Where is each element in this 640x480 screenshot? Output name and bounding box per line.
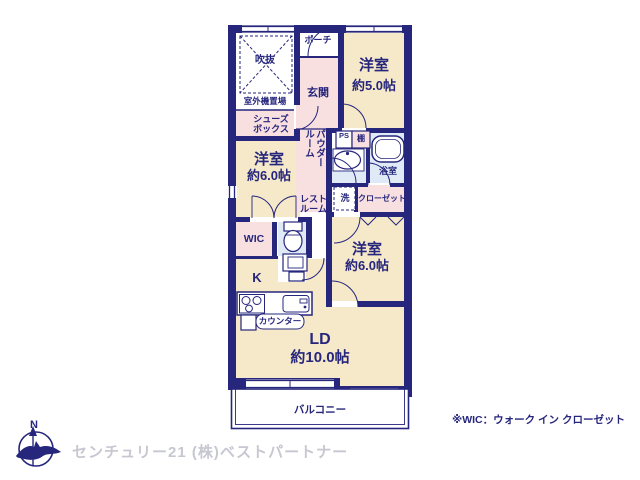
room-label-bathroom: 浴室 (370, 166, 406, 176)
room-label-western-6l-size: 約6.0帖 (234, 169, 304, 184)
compass-north-label: N (24, 419, 44, 432)
room-label-shoe-box: シューズボックス (251, 114, 291, 134)
room-label-wic: WIC (236, 233, 272, 245)
north-compass-icon (16, 426, 61, 466)
room-label-void: 吹抜 (236, 55, 294, 67)
compass-bird-shape (16, 441, 61, 460)
floor-plan-page: 吹抜 室外機置場 シューズボックス ポーチ 玄関 洋室 約5.0帖 パウダールー… (0, 0, 640, 480)
wic-note: ※WIC：ウォーク イン クローゼット (452, 414, 640, 426)
room-label-ps: PS (338, 132, 350, 140)
room-label-outdoor-unit: 室外機置場 (233, 97, 297, 107)
toilet-tank-icon (284, 222, 302, 231)
room-label-western-6r-name: 洋室 (334, 241, 400, 258)
toilet-bowl-icon (284, 231, 302, 252)
room-label-kitchen: K (244, 271, 270, 286)
room-label-ld-name: LD (290, 331, 350, 349)
company-watermark: センチュリー21 (株)ベストパートナー (72, 444, 372, 461)
room-label-porch: ポーチ (296, 35, 340, 45)
room-label-powder-room: パウダールーム (301, 129, 325, 175)
room-label-western-6l-name: 洋室 (237, 151, 301, 168)
room-label-laundry: 洗 (336, 193, 354, 203)
room-label-entrance: 玄関 (300, 87, 336, 100)
room-label-western-5-size: 約5.0帖 (340, 79, 408, 94)
room-label-ld-size: 約10.0帖 (278, 349, 362, 366)
room-label-western-5-name: 洋室 (342, 57, 406, 74)
cabinet-box (241, 315, 256, 330)
room-label-counter: カウンター (257, 317, 303, 327)
sink-icon (283, 296, 309, 313)
floor-lobby (312, 212, 326, 258)
room-label-rest-room: レストルーム (299, 195, 328, 214)
room-label-shelf: 棚 (352, 134, 370, 143)
room-label-balcony: バルコニー (280, 404, 360, 416)
room-label-closet: クローゼット (358, 194, 404, 203)
room-label-western-6r-size: 約6.0帖 (332, 259, 402, 274)
